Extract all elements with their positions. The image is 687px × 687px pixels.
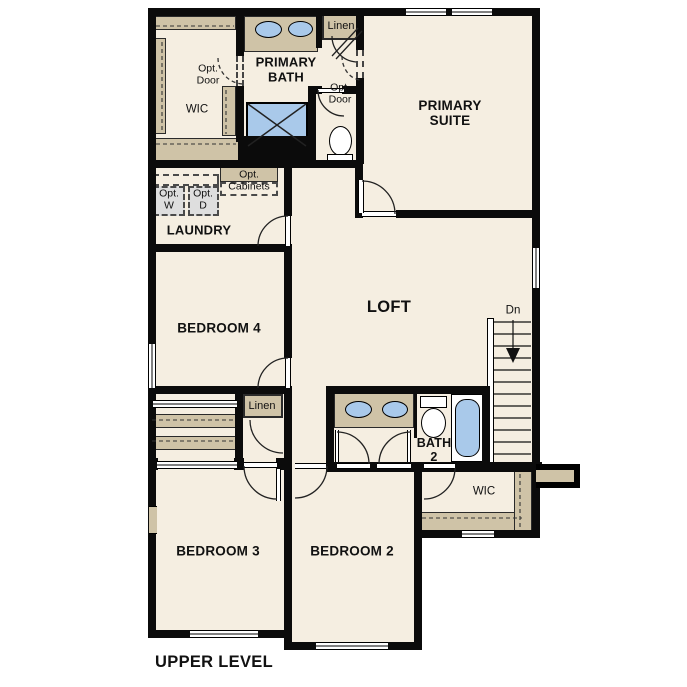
door-threshold: [244, 462, 277, 468]
wall: [356, 78, 364, 164]
wall: [316, 16, 322, 48]
floor-plan: WIC Opt. Door PRIMARY BATH Linen Opt. Do…: [0, 0, 687, 687]
door-threshold: [295, 463, 326, 469]
wall: [238, 136, 316, 164]
wall: [284, 244, 292, 358]
optional-cabinets-label: Opt. Cabinets: [228, 169, 269, 193]
door-leaf: [407, 430, 411, 462]
wall: [148, 386, 292, 394]
wall: [482, 392, 490, 464]
room-label-wic-bedroom-2: WIC: [473, 486, 495, 499]
window: [316, 642, 388, 650]
wall-patch: [149, 506, 157, 534]
wall: [148, 8, 156, 638]
window: [452, 8, 492, 16]
wall: [396, 210, 540, 218]
closet-label-linen-hall: Linen: [249, 400, 276, 412]
room-label-primary-bath: PRIMARY BATH: [256, 55, 317, 84]
wic2-shelf-bottom: [420, 512, 524, 532]
sink-icon: [288, 21, 313, 37]
door-threshold: [285, 216, 291, 246]
room-label-bedroom-2: BEDROOM 2: [310, 543, 394, 558]
wall: [326, 386, 490, 394]
door-threshold: [285, 358, 291, 388]
sink-icon: [382, 401, 408, 418]
window: [190, 630, 258, 638]
room-label-bedroom-3: BEDROOM 3: [176, 543, 260, 558]
optional-door-label: Opt. Door: [329, 82, 352, 106]
stairs-down-label: Dn: [506, 305, 521, 318]
door-leaf: [335, 430, 339, 462]
sink-icon: [345, 401, 372, 418]
wall: [148, 244, 292, 252]
wall: [284, 386, 292, 464]
wall: [284, 160, 292, 216]
sliding-closet-door: [157, 461, 237, 469]
closet-rod-bedroom-4: [150, 414, 236, 428]
sliding-closet-door: [153, 400, 237, 408]
closet-rod-bedroom-3: [150, 436, 236, 450]
room-label-primary-suite: PRIMARY SUITE: [418, 98, 481, 128]
optional-door-opening: [236, 56, 244, 86]
closet-label-linen-upper: Linen: [328, 20, 355, 32]
room-label-loft: LOFT: [367, 298, 411, 316]
wic2-nook: [536, 464, 580, 488]
toilet-tank: [420, 396, 447, 408]
room-label-bath-2: BATH 2: [417, 436, 452, 464]
window: [462, 530, 494, 538]
plan-title: UPPER LEVEL: [155, 653, 273, 671]
laundry-counter-outline: [153, 174, 219, 186]
wall: [284, 460, 292, 650]
wall: [414, 394, 417, 438]
door-threshold: [337, 463, 370, 469]
wic-shelf-right: [222, 86, 236, 136]
wic2-shelf-right: [514, 470, 532, 532]
bathtub-icon: [455, 399, 480, 457]
room-label-bedroom-4: BEDROOM 4: [177, 320, 261, 335]
room-label-laundry: LAUNDRY: [167, 224, 231, 239]
window: [532, 248, 540, 288]
window: [406, 8, 446, 16]
room-label-wic-primary: WIC: [186, 104, 208, 117]
door-threshold: [377, 463, 411, 469]
toilet-icon: [421, 408, 446, 438]
wall: [326, 386, 334, 464]
toilet-icon: [329, 126, 352, 156]
door-threshold: [362, 211, 396, 217]
door-leaf: [276, 469, 281, 501]
optional-dryer-label: Opt. D: [193, 188, 213, 212]
door-leaf: [358, 180, 364, 213]
wall: [414, 464, 422, 650]
optional-door-label: Opt. Door: [197, 63, 220, 87]
wall: [236, 86, 244, 142]
wic-shelf-bottom: [154, 138, 240, 162]
optional-washer-label: Opt. W: [159, 188, 179, 212]
window: [148, 344, 156, 388]
wall: [308, 86, 316, 142]
optional-door-opening: [356, 50, 364, 78]
sink-icon: [255, 21, 282, 38]
wall: [236, 16, 244, 60]
wic-shelf-top: [154, 16, 236, 30]
